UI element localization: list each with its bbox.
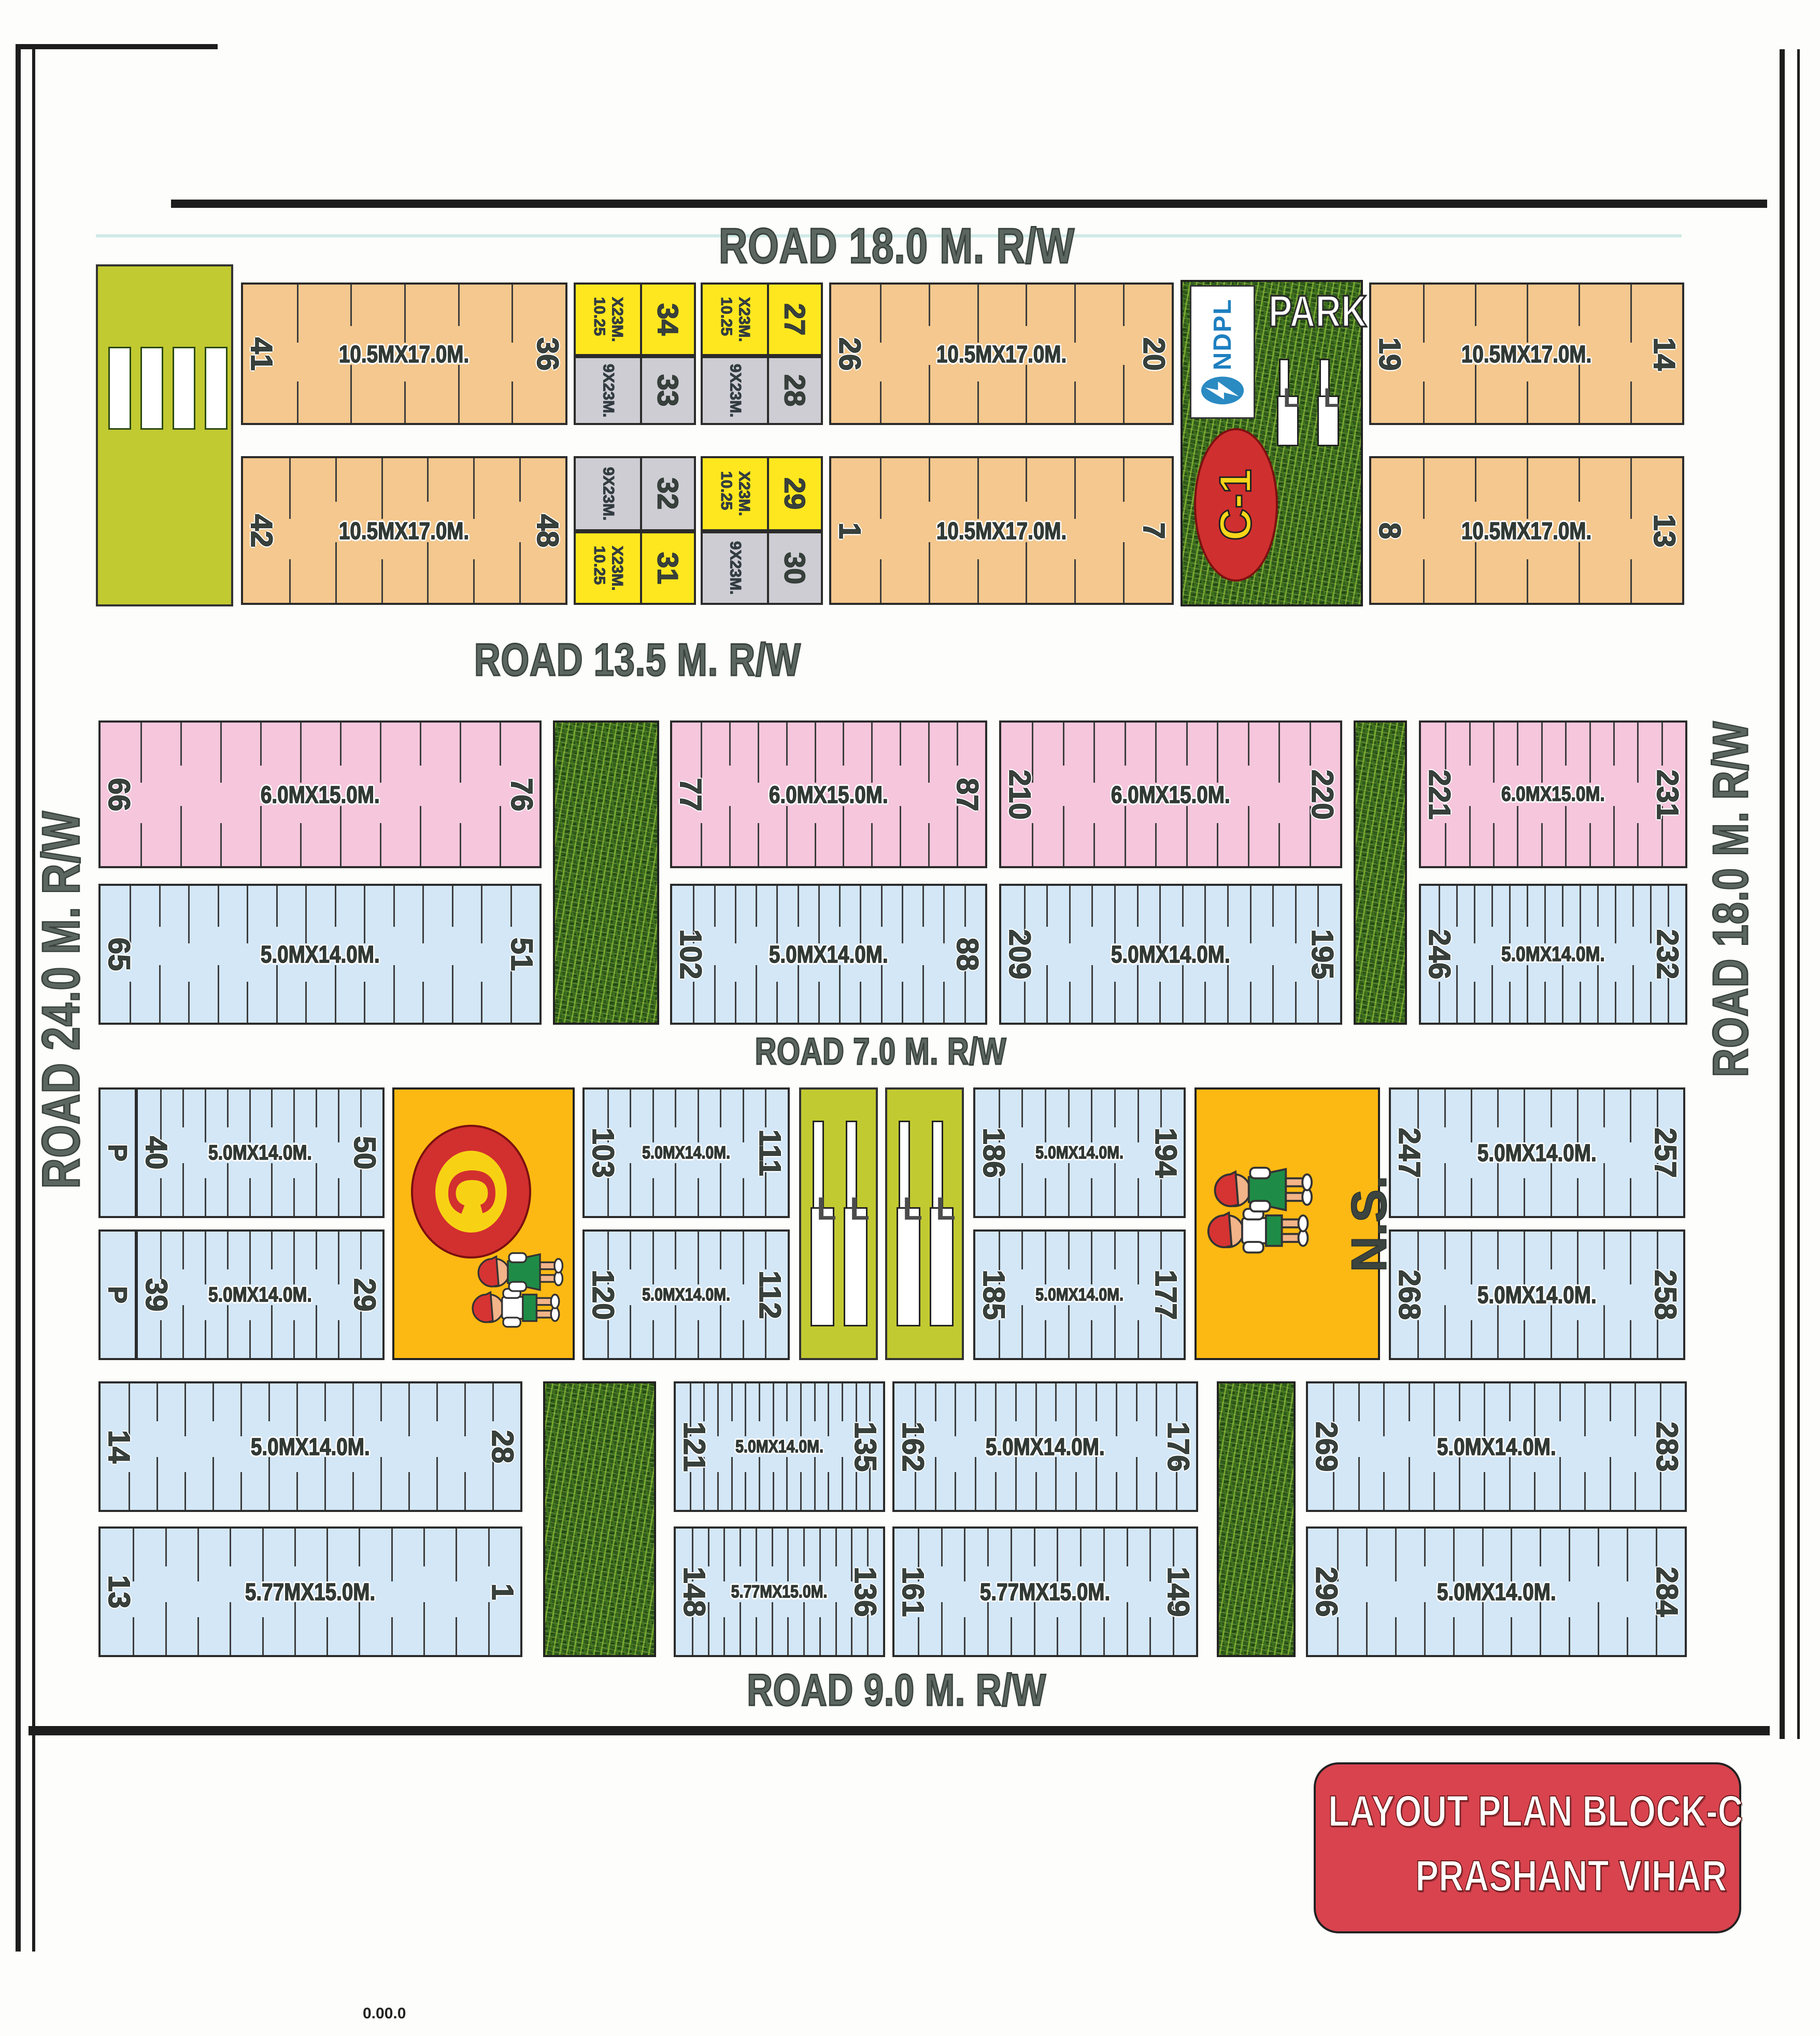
plot-divider [1137, 1232, 1139, 1284]
plot-divider [1579, 542, 1580, 603]
plot-divider [260, 723, 262, 766]
plot-divider [1456, 886, 1458, 927]
plot-divider [720, 1163, 721, 1216]
plot-divider [814, 1457, 816, 1510]
scan-artifact: 0.00.0 [363, 2005, 406, 2023]
plot-divider [340, 723, 342, 766]
plot-divider [1579, 365, 1580, 423]
plot-divider [1471, 1232, 1472, 1284]
plot-divider [1123, 285, 1125, 326]
plot-number-left: 161 [898, 1567, 928, 1617]
plot-divider [776, 886, 778, 943]
plot-divider [316, 1090, 317, 1127]
plot-divider [871, 823, 873, 866]
plot-block-19-14: 191410.5MX17.0M. [1369, 282, 1684, 425]
lamp-post-icon: L [897, 1121, 920, 1326]
plot-divider [835, 1602, 837, 1655]
plot-divider [703, 1383, 705, 1421]
plot-dimension: 10.5MX17.0M. [243, 458, 565, 603]
plot-divider [159, 886, 161, 927]
plot-divider [731, 1383, 733, 1421]
plot-divider [249, 1320, 251, 1358]
plot-divider [1637, 823, 1639, 866]
plot-block-32: 9X23M.32 [574, 456, 696, 531]
plot-divider [393, 886, 395, 927]
plot-divider [1032, 823, 1033, 866]
plot-divider [380, 723, 381, 783]
plot-divider [1637, 723, 1639, 783]
plot-divider [1063, 723, 1064, 766]
plot-block-120-112: 1201125.0MX14.0M. [582, 1229, 790, 1360]
plot-divider [1045, 1320, 1046, 1358]
plot-divider [262, 1529, 264, 1581]
plot-dimension: 5.0MX14.0M. [101, 1383, 520, 1510]
plot-divider [260, 806, 262, 866]
plot-divider [500, 806, 501, 866]
plot-divider [184, 1472, 186, 1510]
plot-divider [819, 1529, 821, 1581]
plot-divider [773, 1383, 774, 1436]
plot-divider [316, 1305, 317, 1358]
plot-divider [900, 723, 901, 766]
plot-block-103-111: 1031115.0MX14.0M. [582, 1087, 790, 1218]
left-border-outer [16, 44, 21, 1952]
plot-divider [1186, 806, 1188, 866]
plot-divider [380, 1383, 382, 1421]
plot-divider [1527, 886, 1528, 927]
plot-divider [1069, 886, 1071, 943]
plot-divider [364, 886, 365, 943]
plot-divider [1173, 1529, 1174, 1566]
plot-divider [335, 542, 337, 603]
plot-divider [1551, 1090, 1552, 1127]
plot-divider [182, 1090, 184, 1127]
plot-divider [759, 1457, 760, 1510]
ndpl-logo: NDPL [1200, 299, 1245, 406]
plot-divider [129, 1383, 130, 1436]
plot-divider [1544, 886, 1546, 943]
plot-number-right: 135 [850, 1422, 880, 1472]
plot-divider [1114, 1305, 1116, 1358]
plot-divider [943, 886, 945, 943]
plot-divider [922, 886, 924, 927]
plot-block-30: 9X23M.30 [701, 531, 823, 605]
plot-divider [915, 1472, 916, 1510]
plot-number-right: 20 [1139, 337, 1169, 371]
plot-divider [380, 823, 381, 866]
plot-divider [977, 458, 979, 519]
plot-divider [230, 1529, 231, 1566]
plot-number-left: 26 [834, 337, 864, 371]
plot-divider [1093, 723, 1095, 783]
plot-divider [1026, 285, 1027, 326]
parking-bar [205, 347, 227, 430]
plot-divider [271, 1090, 273, 1127]
plot-number-left: 246 [1424, 929, 1454, 980]
plot-divider [420, 806, 421, 866]
plot-divider [1610, 1457, 1611, 1510]
plot-divider [1627, 1529, 1628, 1581]
plot-divider [1579, 458, 1580, 502]
plot-divider [205, 1178, 206, 1216]
plot-divider [1123, 458, 1125, 502]
plot-divider [957, 806, 958, 866]
plot-divider [268, 1383, 270, 1421]
green-parking-strip [96, 264, 233, 606]
plot-divider [1080, 1529, 1082, 1566]
plot-divider [1204, 982, 1206, 1023]
layout-plan-page: ROAD 18.0 M. R/W ROAD 13.5 M. R/W ROAD 7… [0, 0, 1820, 2036]
plot-divider [271, 1163, 273, 1216]
plot-divider [227, 1305, 229, 1358]
plot-divider [1423, 559, 1425, 603]
grass-strip [1217, 1381, 1296, 1657]
plot-divider [1598, 1529, 1599, 1566]
plot-divider [1091, 1320, 1092, 1358]
plot-block-34: 10.25X23M.34 [574, 282, 696, 356]
plot-dimension: 5.0MX14.0M. [1308, 1383, 1685, 1510]
plot-divider [1069, 982, 1071, 1023]
plot-divider [305, 982, 307, 1023]
plot-divider [964, 965, 966, 1023]
lamp-letter: L [1324, 385, 1340, 412]
plot-divider [1630, 1232, 1631, 1284]
plot-divider [675, 1232, 676, 1269]
plot-divider [1423, 458, 1425, 519]
park-label: PARK [1256, 286, 1362, 337]
plot-divider [843, 806, 844, 866]
road-label-135: ROAD 13.5 M. R/W [223, 633, 1052, 686]
plot-divider [987, 1529, 989, 1566]
plot-divider [338, 1320, 339, 1358]
plot-divider [422, 982, 424, 1023]
plot-divider [987, 1602, 989, 1655]
plot-number-left: 121 [679, 1422, 709, 1472]
plot-divider [630, 1163, 631, 1216]
plot-block-66-76: 66766.0MX15.0M. [98, 720, 542, 868]
plot-divider [698, 1232, 699, 1284]
plot-number-right: 258 [1650, 1270, 1680, 1320]
plot-divider [422, 886, 424, 943]
plot-divider [460, 823, 461, 866]
plot-divider [977, 285, 979, 343]
plot-divider [1459, 1383, 1460, 1421]
plot-divider [1433, 1383, 1435, 1436]
plot-divider [157, 1383, 158, 1421]
grass-strip [543, 1381, 656, 1657]
parking-cell: P [98, 1229, 137, 1360]
plot-divider [607, 1320, 609, 1358]
plot-divider [1559, 1457, 1561, 1510]
children-icon [467, 1235, 571, 1338]
plot-divider [975, 1457, 976, 1510]
plot-divider [800, 1383, 802, 1436]
plot-divider [842, 1383, 843, 1421]
plot-divider [205, 1090, 206, 1142]
plot-divider [276, 965, 278, 1023]
plot-dimension: 5.77MX15.0M. [101, 1529, 520, 1655]
plot-divider [1551, 1232, 1552, 1269]
plot-divider [1068, 1232, 1070, 1269]
plot-divider [758, 723, 759, 783]
plot-divider [1569, 1529, 1570, 1581]
plot-number-right: 232 [1652, 929, 1682, 980]
grass-strip [553, 720, 659, 1025]
plot-divider [1417, 1178, 1419, 1216]
plot-divider [1417, 1320, 1419, 1358]
plot-block-102-88: 102885.0MX14.0M. [670, 884, 987, 1025]
plot-divider [698, 1178, 699, 1216]
plot-number-left: 66 [104, 777, 134, 811]
plot-divider [1366, 1529, 1368, 1566]
plot-divider [218, 965, 219, 1023]
plot-divider [1127, 1529, 1128, 1566]
plot-divider [814, 1383, 816, 1421]
plot-divider [335, 886, 336, 927]
plot-divider [843, 723, 844, 766]
plot-block-28: 9X23M.28 [701, 356, 823, 425]
plot-number-right: 194 [1150, 1128, 1181, 1178]
plot-divider [803, 1602, 805, 1655]
plot-divider [436, 1457, 438, 1510]
plot-number-right: 7 [1139, 522, 1169, 539]
plot-number-right: 111 [755, 1129, 785, 1176]
top-left-stub [16, 44, 218, 49]
plot-divider [1091, 965, 1093, 1023]
road-label-right: ROAD 18.0 M. R/W [1702, 485, 1759, 1314]
plot-divider [1598, 1602, 1599, 1655]
plot-divider [977, 381, 979, 423]
plot-divider [772, 1529, 773, 1566]
plot-divider [360, 1232, 362, 1269]
plot-block-246-232: 2462325.0MX14.0M. [1419, 884, 1687, 1025]
plot-divider [1615, 982, 1616, 1023]
plot-number-right: 136 [850, 1567, 880, 1617]
plot-divider [1634, 1472, 1636, 1510]
plot-divider [1444, 1163, 1446, 1216]
plot-divider [481, 982, 482, 1023]
plot-divider [1091, 1232, 1092, 1284]
plot-divider [1527, 559, 1528, 603]
lamp-post-icon: L [1317, 359, 1339, 446]
plot-divider [1278, 823, 1280, 866]
plot-divider [197, 1529, 199, 1581]
plot-divider [1068, 1163, 1070, 1216]
plot-divider [352, 1383, 354, 1436]
plot-divider [218, 886, 219, 927]
plot-divider [492, 1383, 494, 1421]
plot-divider [786, 806, 788, 866]
plot-divider [197, 1617, 199, 1655]
lamp-letter: L [850, 1193, 870, 1225]
plot-divider [1445, 823, 1446, 866]
road-label-135-text: ROAD 13.5 M. R/W [474, 633, 801, 686]
plot-divider [420, 723, 421, 766]
plot-divider [935, 1457, 936, 1510]
plot-divider [929, 542, 930, 603]
plot-divider [1116, 1383, 1117, 1436]
plot-divider [360, 1163, 362, 1216]
plot-divider [220, 723, 222, 783]
plot-divider [717, 1472, 719, 1510]
plot-dimension: 5.0MX14.0M. [138, 1090, 382, 1216]
plot-number-right: 112 [755, 1270, 785, 1319]
plot-divider [1137, 1320, 1139, 1358]
plot-divider [1091, 1178, 1092, 1216]
plot-divider [815, 823, 816, 866]
plot-divider [1011, 1617, 1012, 1655]
plot-divider [205, 1232, 206, 1284]
plot-divider [456, 1617, 457, 1655]
plot-block-13-1: 1315.77MX15.0M. [98, 1526, 522, 1657]
plot-divider [1137, 965, 1139, 1023]
plot-divider [803, 1529, 805, 1566]
plot-divider [1650, 982, 1652, 1023]
plot-divider [271, 1305, 273, 1358]
plot-divider [1517, 723, 1518, 766]
plot-block-221-231: 2212316.0MX15.0M. [1419, 720, 1687, 868]
plot-divider [723, 1617, 725, 1655]
plot-divider [1541, 723, 1543, 783]
right-border-inner [1797, 49, 1800, 1739]
road-label-90: ROAD 9.0 M. R/W [430, 1665, 1363, 1716]
plot-divider [929, 458, 930, 502]
plot-divider [1074, 381, 1076, 423]
plot-divider [452, 965, 453, 1023]
plot-divider [1125, 723, 1126, 766]
plot-divider [1424, 1602, 1426, 1655]
plot-block-296-284: 2962845.0MX14.0M. [1306, 1526, 1687, 1657]
plot-divider [1482, 1529, 1484, 1566]
plot-divider [1657, 1090, 1658, 1127]
plot-divider [1024, 982, 1026, 1023]
plot-divider [1317, 886, 1319, 927]
plot-divider [729, 723, 731, 766]
plot-divider [350, 285, 352, 326]
plot-divider [1527, 381, 1528, 423]
plot-divider [188, 886, 190, 943]
plot-number: 27 [767, 285, 821, 354]
parking-cell: P [98, 1087, 137, 1218]
plot-divider [335, 965, 336, 1023]
plot-divider [698, 1090, 699, 1142]
plot-divider [294, 1602, 296, 1655]
lamp-post-icon: L [811, 1121, 834, 1326]
plot-divider [182, 1163, 184, 1216]
plot-divider [1551, 1163, 1552, 1216]
plot-divider [630, 1305, 631, 1358]
plot-number-right: 87 [952, 777, 982, 811]
plot-divider [423, 1602, 425, 1655]
plot-divider [1540, 1602, 1541, 1655]
plot-divider [1453, 1617, 1455, 1655]
plot-number-left: 247 [1394, 1128, 1424, 1178]
plot-number-right: 177 [1150, 1270, 1181, 1320]
plot-divider [1630, 1090, 1631, 1142]
plot-divider [268, 1457, 270, 1510]
plot-dimension: 6.0MX15.0M. [672, 723, 985, 866]
plot-divider [511, 285, 513, 343]
substation-c1-label: C-1 [1211, 469, 1262, 541]
plot-number-left: 8 [1374, 522, 1404, 539]
plot-divider [630, 1090, 631, 1127]
plot-divider [300, 723, 302, 783]
ndpl-substation-box: NDPL [1190, 285, 1255, 419]
plot-divider [720, 1090, 721, 1127]
plot-divider [276, 886, 278, 927]
plot-divider [360, 1305, 362, 1358]
plot-divider [720, 1232, 721, 1269]
plot-number-right: 36 [532, 337, 562, 371]
plot-divider [249, 1178, 251, 1216]
plot-divider [1182, 965, 1184, 1023]
plot-divider [205, 1320, 206, 1358]
plot-divider [129, 1472, 130, 1510]
plot-number-right: 195 [1307, 929, 1337, 980]
plot-divider [867, 1529, 869, 1566]
park-block: NDPL PARK L L C-1 [1181, 280, 1363, 606]
plot-divider [787, 1529, 789, 1581]
parking-bar [173, 347, 195, 430]
plot-divider [652, 1232, 654, 1284]
plot-dimension: 6.0MX15.0M. [1421, 723, 1685, 866]
plot-divider [464, 1383, 466, 1436]
plot-divider [1511, 1529, 1512, 1581]
plot-divider [856, 1472, 857, 1510]
plot-divider [1471, 1090, 1472, 1142]
plot-divider [1227, 965, 1229, 1023]
plot-divider [1657, 1232, 1658, 1269]
plot-block-121-135: 1211355.0MX14.0M. [674, 1381, 885, 1512]
plot-divider [880, 559, 881, 603]
plot-divider [1565, 806, 1567, 866]
plot-divider [316, 1163, 317, 1216]
plot-divider [300, 823, 302, 866]
plot-divider [1475, 542, 1476, 603]
plot-divider [1021, 1305, 1023, 1358]
plot-divider [1469, 806, 1471, 866]
plot-divider [1075, 1472, 1077, 1510]
plot-divider [902, 886, 903, 943]
plot-divider [928, 723, 930, 783]
plot-divider [1524, 1090, 1525, 1142]
plot-divider [765, 1232, 766, 1269]
plot-divider [1125, 806, 1126, 866]
plot-divider [1136, 1457, 1137, 1510]
plot-block-162-176: 1621765.0MX14.0M. [892, 1381, 1198, 1512]
plot-dimension: 5.0MX14.0M. [101, 886, 539, 1023]
plot-divider [1176, 1383, 1177, 1421]
plot-divider [756, 1529, 757, 1581]
plot-block-8-13: 81310.5MX17.0M. [1369, 456, 1684, 605]
plot-divider [1579, 285, 1580, 326]
plot-divider [227, 1090, 229, 1127]
plot-divider [1182, 886, 1184, 927]
plot-divider [1021, 1163, 1023, 1216]
plot-divider [1068, 1090, 1070, 1127]
plot-divider [772, 1602, 773, 1655]
plot-block-1-7: 1710.5MX17.0M. [829, 456, 1174, 605]
plot-divider [1456, 965, 1458, 1023]
plot-divider [1423, 381, 1425, 423]
plot-divider [159, 965, 161, 1023]
plot-divider [500, 723, 501, 766]
plot-dimension: 9X23M. [576, 358, 640, 423]
plot-divider [460, 723, 461, 783]
plot-divider [133, 1617, 134, 1655]
plot-divider [326, 1529, 328, 1581]
plot-divider [957, 723, 958, 766]
